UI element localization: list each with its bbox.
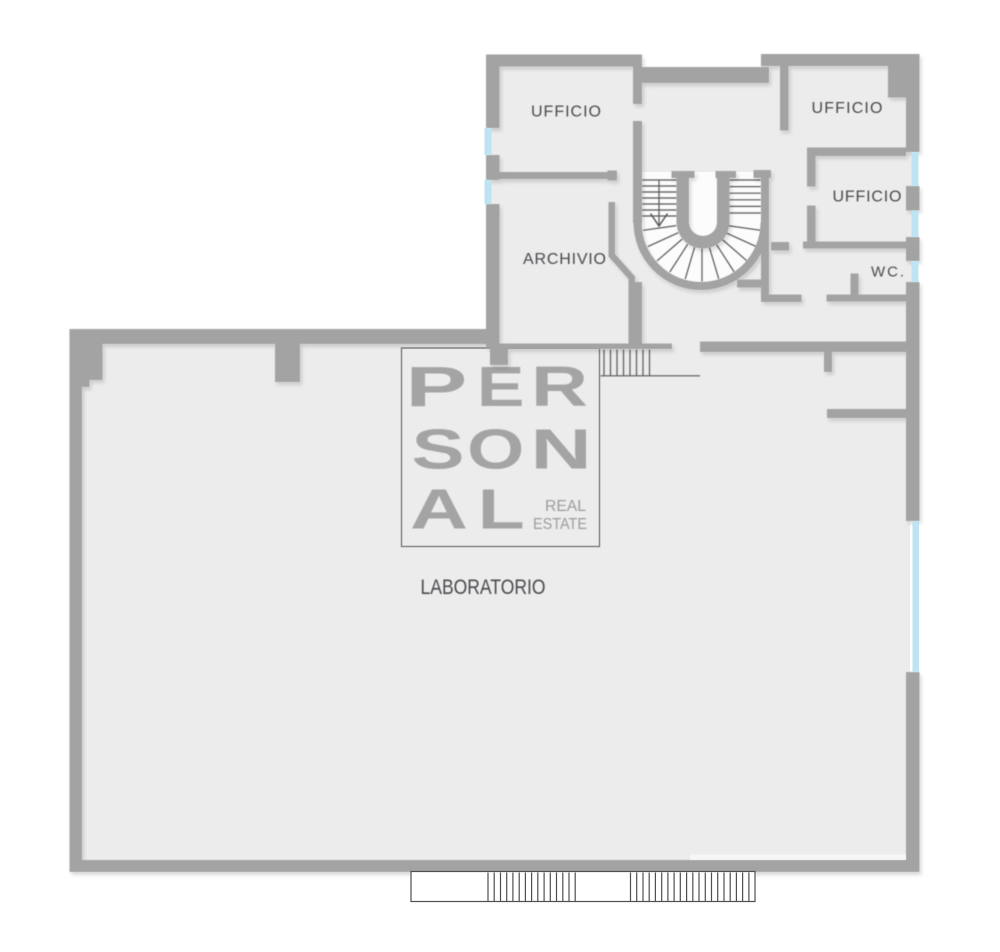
- svg-text:WC.: WC.: [871, 264, 904, 281]
- svg-text:N: N: [531, 418, 592, 481]
- svg-text:UFFICIO: UFFICIO: [833, 189, 902, 206]
- svg-text:L: L: [478, 478, 525, 541]
- svg-text:P: P: [406, 355, 468, 419]
- svg-text:A: A: [410, 477, 468, 541]
- svg-text:ARCHIVIO: ARCHIVIO: [523, 251, 606, 268]
- svg-text:REAL: REAL: [545, 498, 586, 515]
- svg-text:R: R: [531, 355, 588, 419]
- svg-text:LABORATORIO: LABORATORIO: [421, 576, 546, 599]
- svg-text:S: S: [411, 417, 464, 481]
- svg-text:O: O: [467, 416, 524, 480]
- svg-text:UFFICIO: UFFICIO: [812, 100, 883, 117]
- svg-text:UFFICIO: UFFICIO: [531, 104, 601, 121]
- svg-text:ESTATE: ESTATE: [533, 516, 587, 533]
